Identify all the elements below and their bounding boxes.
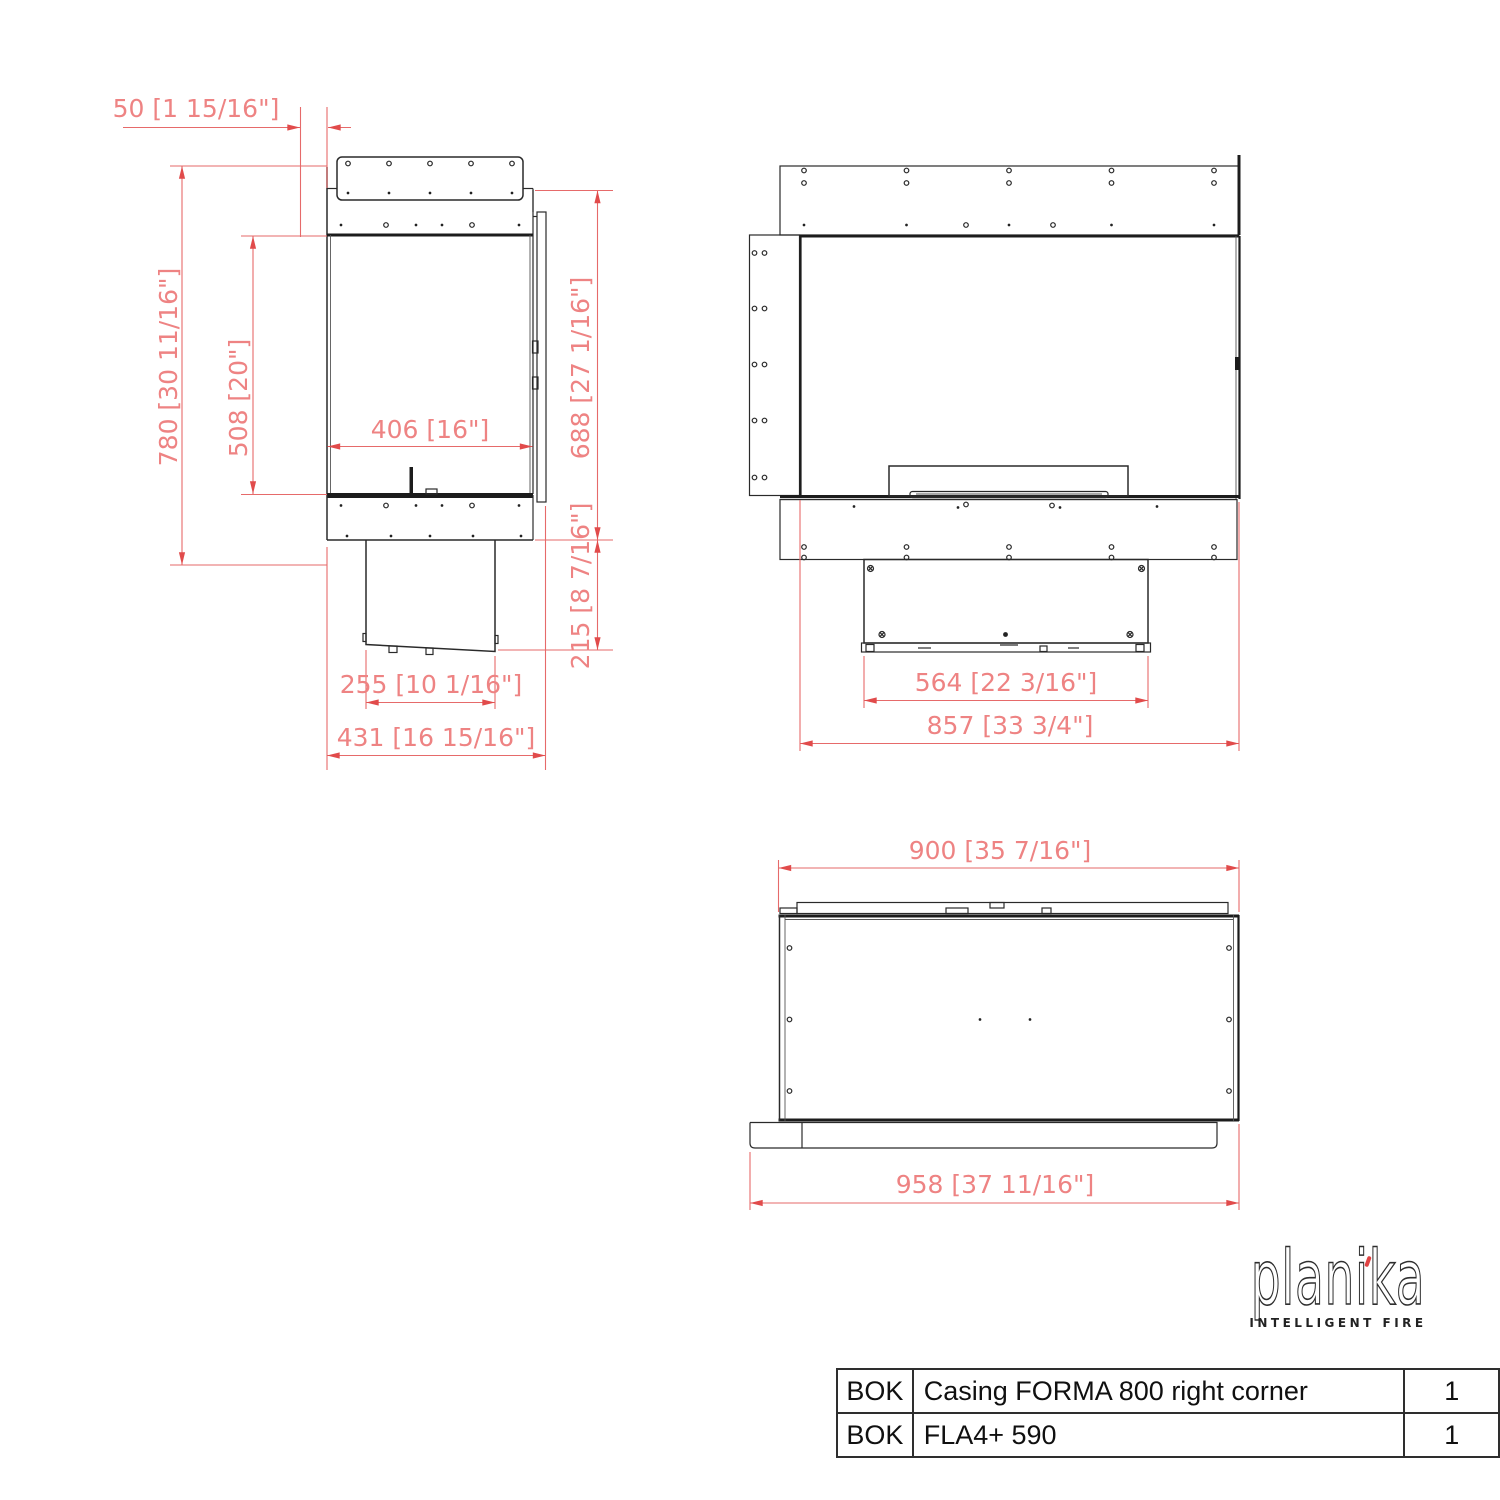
dim-top-total-width: 958 [37 11/16"] — [896, 1170, 1094, 1199]
planika-logo-tagline: INTELLIGENT FIRE — [1228, 1316, 1448, 1330]
part-description: Casing FORMA 800 right corner — [913, 1369, 1405, 1413]
dim-front-total-width: 857 [33 3/4"] — [927, 711, 1094, 740]
parts-table: BOK Casing FORMA 800 right corner 1 BOK … — [836, 1368, 1500, 1458]
side-view-dimensions: 50 [1 15/16"] 780 [30 11/16"] 508 [20"] … — [113, 94, 613, 770]
burner-profile — [410, 467, 414, 493]
side-lower-box — [366, 540, 495, 652]
dim-side-underbox-height: 215 [8 7/16"] — [566, 503, 595, 670]
top-view-dimensions: 900 [35 7/16"] 958 [37 11/16"] — [750, 836, 1239, 1210]
dim-side-glass-height: 688 [27 1/16"] — [566, 277, 595, 460]
part-quantity: 1 — [1404, 1369, 1499, 1413]
table-row: BOK FLA4+ 590 1 — [837, 1413, 1499, 1457]
table-row: BOK Casing FORMA 800 right corner 1 — [837, 1369, 1499, 1413]
dim-side-top-offset: 50 [1 15/16"] — [113, 94, 280, 123]
part-code: BOK — [837, 1369, 913, 1413]
dim-side-opening-width: 406 [16"] — [371, 415, 489, 444]
part-description: FLA4+ 590 — [913, 1413, 1405, 1457]
front-view-dimensions: 564 [22 3/16"] 857 [33 3/4"] — [800, 500, 1239, 751]
front-view: 564 [22 3/16"] 857 [33 3/4"] — [750, 155, 1241, 751]
dim-front-underbox-width: 564 [22 3/16"] — [915, 668, 1098, 697]
top-view: 900 [35 7/16"] 958 [37 11/16"] — [750, 836, 1239, 1210]
part-quantity: 1 — [1404, 1413, 1499, 1457]
drawing-sheet: 50 [1 15/16"] 780 [30 11/16"] 508 [20"] … — [0, 0, 1500, 1500]
dim-side-opening-height: 508 [20"] — [224, 339, 253, 457]
dim-side-total-depth: 431 [16 15/16"] — [337, 723, 535, 752]
side-view: 50 [1 15/16"] 780 [30 11/16"] 508 [20"] … — [113, 94, 613, 770]
planika-logo: planika INTELLIGENT FIRE — [1238, 1244, 1438, 1336]
dim-side-total-height: 780 [30 11/16"] — [154, 268, 183, 466]
dim-side-underbox-depth: 255 [10 1/16"] — [340, 670, 523, 699]
top-strip — [797, 903, 1228, 914]
planika-logo-wordmark: planika — [1251, 1238, 1426, 1318]
top-bottom-lip — [750, 1123, 1217, 1149]
side-glass-strip — [537, 212, 546, 502]
part-code: BOK — [837, 1413, 913, 1457]
front-bottom-band — [780, 500, 1237, 560]
front-lower-box — [864, 560, 1148, 644]
dim-top-plate-width: 900 [35 7/16"] — [909, 836, 1092, 865]
front-bottom-strip — [862, 643, 1151, 652]
